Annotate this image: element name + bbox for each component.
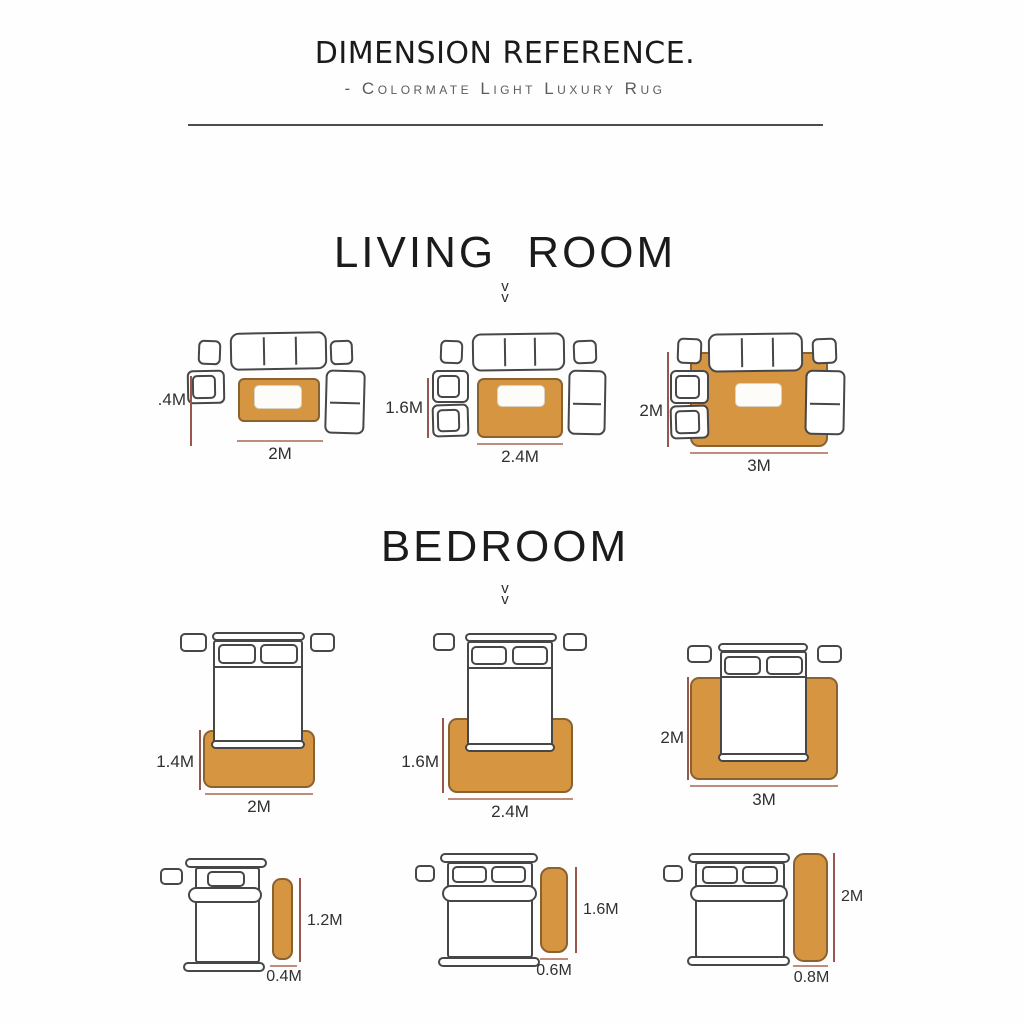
bedroom-layout-1: 1.4M 2M (160, 628, 370, 818)
rug-width-label: 0.4M (258, 968, 310, 986)
dimension-line-horizontal (540, 958, 568, 960)
bedside-runner-layout-2: 1.6M 0.6M (410, 845, 625, 985)
bed-blanket-roll (188, 887, 262, 903)
dimension-line-horizontal (448, 798, 573, 800)
dimension-line-vertical (687, 677, 689, 780)
loveseat (324, 369, 366, 434)
chevron-down-icon: v (0, 594, 1010, 605)
dimension-line-horizontal (690, 452, 828, 454)
pillow (218, 644, 256, 664)
living-room-layout-3: 2M 3M (650, 318, 885, 483)
bedroom-heading: BEDROOM (0, 522, 1010, 572)
double-chevron-down-icon: v v (0, 281, 1010, 303)
sofa (230, 331, 328, 371)
rug-width-label: 0.6M (528, 962, 580, 980)
rug-width-label: 1.6M (397, 752, 439, 772)
side-table (812, 338, 838, 365)
dimension-line-horizontal (270, 965, 297, 967)
double-chevron-down-icon: v v (0, 583, 1010, 605)
rug-length-label: 2M (229, 797, 289, 817)
pillow (207, 871, 245, 887)
nightstand (433, 633, 455, 651)
pillow (260, 644, 298, 664)
bed-blanket-roll (442, 885, 537, 902)
side-table (330, 340, 354, 366)
armchair (187, 370, 226, 405)
bed-blanket-roll (690, 885, 788, 902)
nightstand (310, 633, 335, 652)
dimension-line-vertical (667, 352, 669, 447)
runner-rug (272, 878, 293, 960)
bed-linen-line (213, 666, 303, 668)
bedside-runner-layout-3: 2M 0.8M (660, 840, 875, 990)
rug-height-label: 1.6M (583, 901, 627, 919)
chevron-down-icon: v (0, 292, 1010, 303)
footboard (438, 957, 540, 967)
pillow (491, 866, 526, 883)
rug-width-label: 1.6M (381, 398, 423, 418)
rug-height-label: 2M (841, 888, 877, 906)
dimension-line-vertical (190, 376, 192, 446)
side-table (573, 340, 598, 365)
coffee-table (497, 385, 545, 407)
pillow (512, 646, 548, 665)
pillow (471, 646, 507, 665)
header-divider (188, 124, 823, 126)
rug-length-label: 3M (739, 790, 789, 810)
pillow (742, 866, 778, 884)
rug-width-label: 1.4M (154, 752, 194, 772)
coffee-table (254, 385, 302, 409)
bed-linen-line (467, 667, 553, 669)
bed-linen-line (720, 676, 807, 678)
pillow (702, 866, 738, 884)
rug-width-label: 2M (628, 401, 663, 421)
rug-width-label: .4M (150, 390, 186, 410)
rug-width-label: 0.8M (784, 969, 839, 987)
bedroom-layout-3: 2M 3M (662, 618, 884, 818)
nightstand (415, 865, 435, 882)
armchair (670, 370, 709, 404)
pillow (452, 866, 487, 883)
pillow (766, 656, 803, 675)
rug-width-label: 2M (646, 728, 684, 748)
side-table (440, 340, 464, 365)
living-room-layout-1: .4M 2M (160, 326, 390, 476)
dimension-line-vertical (199, 730, 201, 790)
armchair (432, 404, 470, 438)
dimension-line-vertical (575, 867, 577, 953)
footboard (465, 743, 555, 752)
footboard (211, 740, 305, 749)
sofa (472, 332, 566, 371)
nightstand (160, 868, 183, 885)
dimension-line-vertical (299, 878, 301, 962)
dimension-line-vertical (427, 378, 429, 438)
rug-length-label: 2.4M (489, 447, 551, 467)
dimension-line-horizontal (793, 965, 828, 967)
nightstand (180, 633, 207, 652)
side-table (677, 338, 703, 365)
pillow (724, 656, 761, 675)
nightstand (817, 645, 842, 663)
nightstand (663, 865, 683, 882)
footboard (718, 753, 809, 762)
nightstand (563, 633, 587, 651)
rug-length-label: 2M (248, 444, 312, 464)
rug-height-label: 1.2M (307, 912, 351, 930)
dimension-line-vertical (833, 853, 835, 962)
loveseat (804, 370, 845, 436)
runner-rug (540, 867, 568, 953)
page-title: DIMENSION REFERENCE. (0, 36, 1010, 71)
living-room-layout-2: 1.6M 2.4M (405, 326, 635, 486)
sofa (708, 332, 804, 372)
dimension-reference-infographic: DIMENSION REFERENCE. - Colormate Light L… (0, 0, 1024, 1024)
rug-length-label: 3M (734, 456, 784, 476)
bedside-runner-layout-1: 1.2M 0.4M (155, 850, 355, 985)
bedroom-layout-2: 1.6M 2.4M (415, 622, 630, 817)
dimension-line-horizontal (237, 440, 323, 442)
nightstand (687, 645, 712, 663)
armchair (670, 404, 710, 439)
footboard (687, 956, 790, 966)
coffee-table (735, 383, 782, 407)
dimension-line-horizontal (690, 785, 838, 787)
dimension-line-horizontal (205, 793, 313, 795)
dimension-line-vertical (442, 718, 444, 793)
dimension-line-horizontal (477, 443, 563, 445)
living-room-heading: LIVING ROOM (0, 228, 1010, 278)
footboard (183, 962, 265, 972)
runner-rug (793, 853, 828, 962)
loveseat (567, 370, 606, 436)
side-table (198, 340, 222, 366)
rug-length-label: 2.4M (479, 802, 541, 822)
armchair (432, 370, 469, 403)
product-subtitle: - Colormate Light Luxury Rug (0, 79, 1010, 99)
